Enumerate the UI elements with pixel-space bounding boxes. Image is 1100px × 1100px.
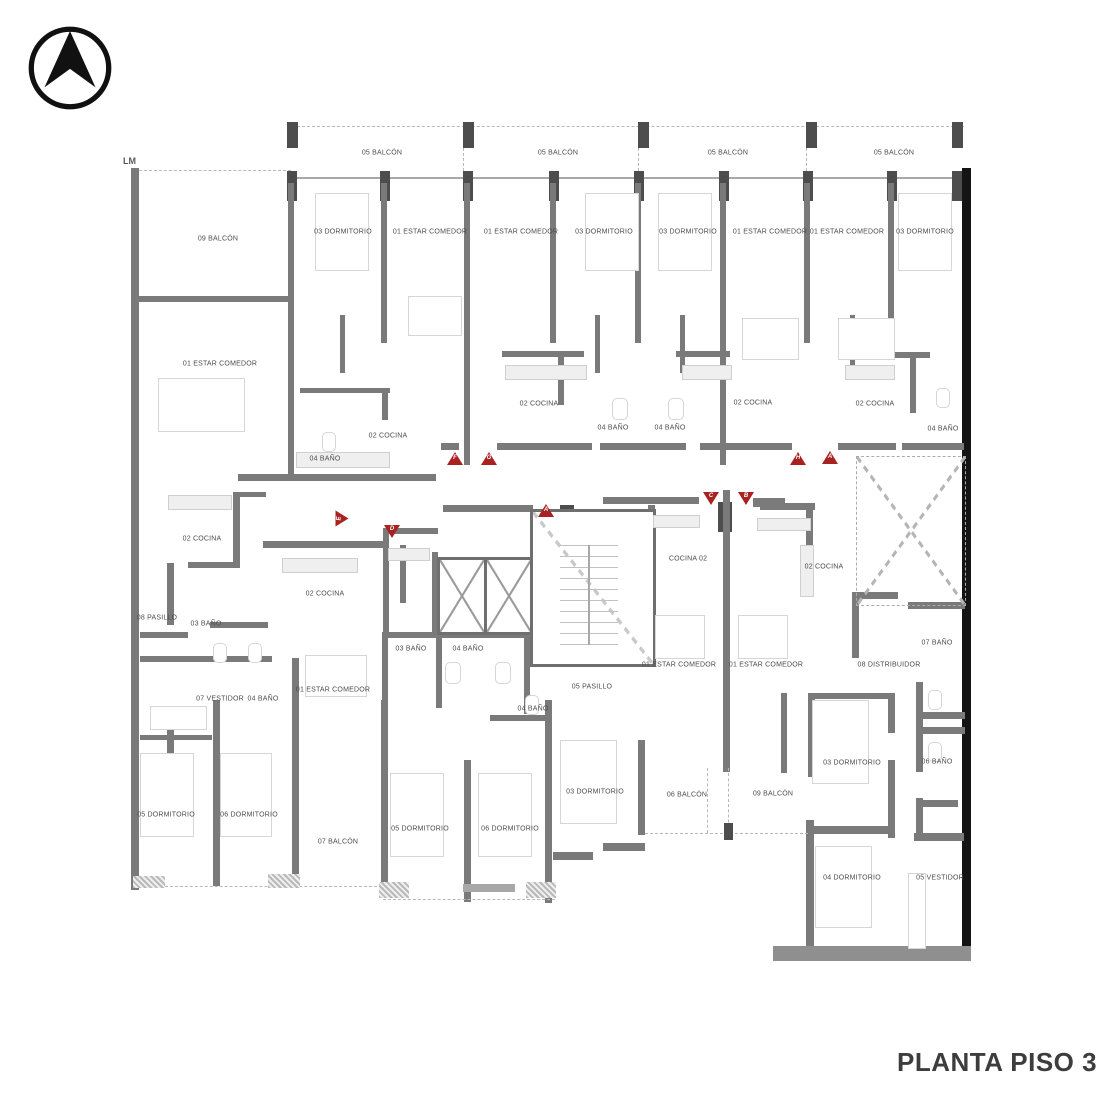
page-title: PLANTA PISO 3 xyxy=(897,1047,1097,1078)
room-label: 03 BAÑO xyxy=(396,646,427,653)
wall xyxy=(838,443,896,450)
marker-letter: B xyxy=(738,493,754,499)
north-arrow-icon xyxy=(26,24,114,112)
kitchen-counter xyxy=(845,365,895,380)
elevator-shaft xyxy=(437,557,487,635)
closet-outline xyxy=(150,706,207,730)
room-label: 01 ESTAR COMEDOR xyxy=(393,229,467,236)
bed-outline xyxy=(478,773,532,857)
closet-outline xyxy=(908,873,926,949)
table-outline xyxy=(742,318,799,360)
boundary-label: LM xyxy=(123,156,136,166)
room-label: 03 DORMITORIO xyxy=(575,229,633,236)
room-label: 03 DORMITORIO xyxy=(896,229,954,236)
marker-letter: F xyxy=(447,455,463,461)
room-label: 05 DORMITORIO xyxy=(391,826,449,833)
wall xyxy=(603,843,645,851)
wall xyxy=(383,528,389,632)
bed-outline xyxy=(140,753,194,837)
room-label: 03 DORMITORIO xyxy=(659,229,717,236)
fixture-outline xyxy=(248,643,262,663)
wall xyxy=(436,638,442,708)
marker-letter: G xyxy=(481,455,497,461)
room-label: 02 COCINA xyxy=(306,591,345,598)
wall xyxy=(600,443,686,450)
wall xyxy=(139,296,294,302)
room-label: 01 ESTAR COMEDOR xyxy=(810,229,884,236)
dashed-line xyxy=(292,126,964,127)
room-label: 01 ESTAR COMEDOR xyxy=(729,662,803,669)
dashed-line xyxy=(135,886,382,887)
room-label: 07 BAÑO xyxy=(922,640,953,647)
wall xyxy=(188,562,240,568)
kitchen-counter xyxy=(757,518,811,531)
marker-letter: C xyxy=(703,493,719,499)
hatched-sill xyxy=(379,882,409,898)
wall xyxy=(920,712,965,719)
room-label: 02 COCINA xyxy=(805,564,844,571)
section-marker: E xyxy=(336,511,349,527)
bed-outline xyxy=(812,700,869,784)
room-label: 04 BAÑO xyxy=(248,696,279,703)
wall xyxy=(443,505,533,512)
table-outline xyxy=(158,378,245,432)
kitchen-counter xyxy=(168,495,232,510)
room-label: 04 BAÑO xyxy=(598,425,629,432)
section-marker: G xyxy=(481,452,497,465)
fixture-outline xyxy=(612,398,628,420)
kitchen-counter xyxy=(653,515,700,528)
wall xyxy=(723,490,730,772)
kitchen-counter xyxy=(282,558,358,573)
room-label: 04 BAÑO xyxy=(928,426,959,433)
floor-plan: LM xyxy=(0,0,1100,1100)
fixture-outline xyxy=(668,398,684,420)
section-marker: A xyxy=(822,451,838,464)
section-marker: A xyxy=(538,504,554,517)
room-label: 01 ESTAR COMEDOR xyxy=(296,687,370,694)
column xyxy=(638,122,649,148)
bed-outline xyxy=(390,773,444,857)
column xyxy=(287,122,298,148)
kitchen-counter xyxy=(388,548,430,561)
room-label: 05 BALCÓN xyxy=(362,150,402,157)
wall xyxy=(490,715,550,721)
fixture-outline xyxy=(936,388,950,408)
hatched-sill xyxy=(526,882,556,898)
room-label: 06 BALCÓN xyxy=(667,792,707,799)
wall xyxy=(238,474,436,481)
fixture-outline xyxy=(928,690,942,710)
wall xyxy=(441,443,459,450)
table-outline xyxy=(738,615,788,659)
wall xyxy=(213,700,220,886)
wall xyxy=(236,492,266,497)
wall xyxy=(638,740,645,835)
wall xyxy=(263,541,383,548)
wall xyxy=(920,800,958,807)
dashed-line xyxy=(707,768,708,833)
section-marker: F xyxy=(447,452,463,465)
wall xyxy=(288,183,294,478)
room-label: 06 DORMITORIO xyxy=(481,826,539,833)
room-label: 09 BALCÓN xyxy=(198,236,238,243)
room-label: 05 VESTIDOR xyxy=(916,875,964,882)
wall xyxy=(381,183,387,343)
room-label: 04 BAÑO xyxy=(310,456,341,463)
wall xyxy=(595,315,600,373)
wall xyxy=(464,760,471,902)
hatched-sill xyxy=(133,876,165,888)
wall xyxy=(340,315,345,373)
room-label: COCINA 02 xyxy=(669,556,707,563)
fixture-outline xyxy=(495,662,511,684)
table-outline xyxy=(838,318,895,360)
room-label: 02 COCINA xyxy=(856,401,895,408)
room-label: 04 BAÑO xyxy=(453,646,484,653)
column xyxy=(463,122,474,148)
marker-letter: E xyxy=(337,511,343,527)
bed-outline xyxy=(560,740,617,824)
room-label: 06 BAÑO xyxy=(922,759,953,766)
wall xyxy=(806,820,814,952)
room-label: 06 DORMITORIO xyxy=(220,812,278,819)
shaft-void xyxy=(856,456,966,606)
wall xyxy=(808,693,895,699)
column xyxy=(952,122,963,148)
room-label: 02 COCINA xyxy=(369,433,408,440)
kitchen-counter xyxy=(682,365,732,380)
wall xyxy=(804,183,810,343)
section-marker: H xyxy=(790,452,806,465)
room-label: 08 DISTRIBUIDOR xyxy=(858,662,921,669)
column xyxy=(952,171,962,201)
wall xyxy=(588,545,590,645)
room-label: 09 BALCÓN xyxy=(753,791,793,798)
room-label: 02 COCINA xyxy=(520,401,559,408)
bed-outline xyxy=(815,846,872,928)
room-label: 05 BALCÓN xyxy=(538,150,578,157)
room-label: 03 BAÑO xyxy=(191,621,222,628)
table-outline xyxy=(655,615,705,659)
hatched-sill xyxy=(268,874,300,888)
fixture-outline xyxy=(322,432,336,452)
wall xyxy=(550,183,556,343)
section-marker: D xyxy=(384,525,400,538)
room-label: 04 BAÑO xyxy=(655,425,686,432)
section-marker: C xyxy=(703,492,719,505)
room-label: 04 BAÑO xyxy=(518,706,549,713)
dashed-line xyxy=(383,899,555,900)
wall xyxy=(773,946,971,961)
wall xyxy=(381,700,388,890)
marker-letter: A xyxy=(538,507,554,513)
wall xyxy=(382,390,388,420)
room-label: 01 ESTAR COMEDOR xyxy=(642,662,716,669)
wall xyxy=(676,351,730,357)
room-label: 03 DORMITORIO xyxy=(823,760,881,767)
room-label: 05 BALCÓN xyxy=(874,150,914,157)
wall xyxy=(888,693,895,733)
room-label: 05 BALCÓN xyxy=(708,150,748,157)
dashed-line xyxy=(139,170,291,171)
column xyxy=(806,122,817,148)
kitchen-counter xyxy=(505,365,587,380)
wall xyxy=(233,492,240,566)
room-label: 05 DORMITORIO xyxy=(137,812,195,819)
room-label: 04 DORMITORIO xyxy=(823,875,881,882)
room-label: 02 COCINA xyxy=(183,536,222,543)
wall xyxy=(463,884,515,892)
wall xyxy=(497,443,592,450)
room-label: 08 PASILLO xyxy=(137,615,177,622)
wall xyxy=(502,351,584,357)
room-label: 03 DORMITORIO xyxy=(566,789,624,796)
room-label: 01 ESTAR COMEDOR xyxy=(484,229,558,236)
wall xyxy=(140,632,188,638)
wall xyxy=(920,727,965,734)
wall xyxy=(382,632,388,704)
fixture-outline xyxy=(445,662,461,684)
room-label: 03 DORMITORIO xyxy=(314,229,372,236)
section-marker: B xyxy=(738,492,754,505)
room-label: 01 ESTAR COMEDOR xyxy=(733,229,807,236)
wall xyxy=(131,168,139,890)
room-label: 02 COCINA xyxy=(734,400,773,407)
marker-letter: D xyxy=(384,526,400,532)
marker-letter: A xyxy=(822,454,838,460)
wall xyxy=(553,852,593,860)
column xyxy=(724,823,733,840)
wall xyxy=(806,826,895,834)
wall xyxy=(781,693,787,773)
room-label: 07 VESTIDOR xyxy=(196,696,244,703)
room-label: 01 ESTAR COMEDOR xyxy=(183,361,257,368)
wall xyxy=(902,443,964,450)
wall xyxy=(140,735,212,740)
table-outline xyxy=(408,296,462,336)
wall xyxy=(720,183,726,465)
bed-outline xyxy=(220,753,272,837)
wall xyxy=(700,443,792,450)
wall xyxy=(545,700,552,903)
wall xyxy=(464,183,470,465)
elevator-shaft xyxy=(484,557,534,635)
wall xyxy=(292,177,966,179)
wall xyxy=(603,497,699,504)
marker-letter: H xyxy=(790,455,806,461)
wall xyxy=(300,388,390,393)
room-label: 07 BALCÓN xyxy=(318,839,358,846)
kitchen-counter xyxy=(800,545,814,597)
fixture-outline xyxy=(213,643,227,663)
wall xyxy=(910,358,916,413)
room-label: 05 PASILLO xyxy=(572,684,612,691)
